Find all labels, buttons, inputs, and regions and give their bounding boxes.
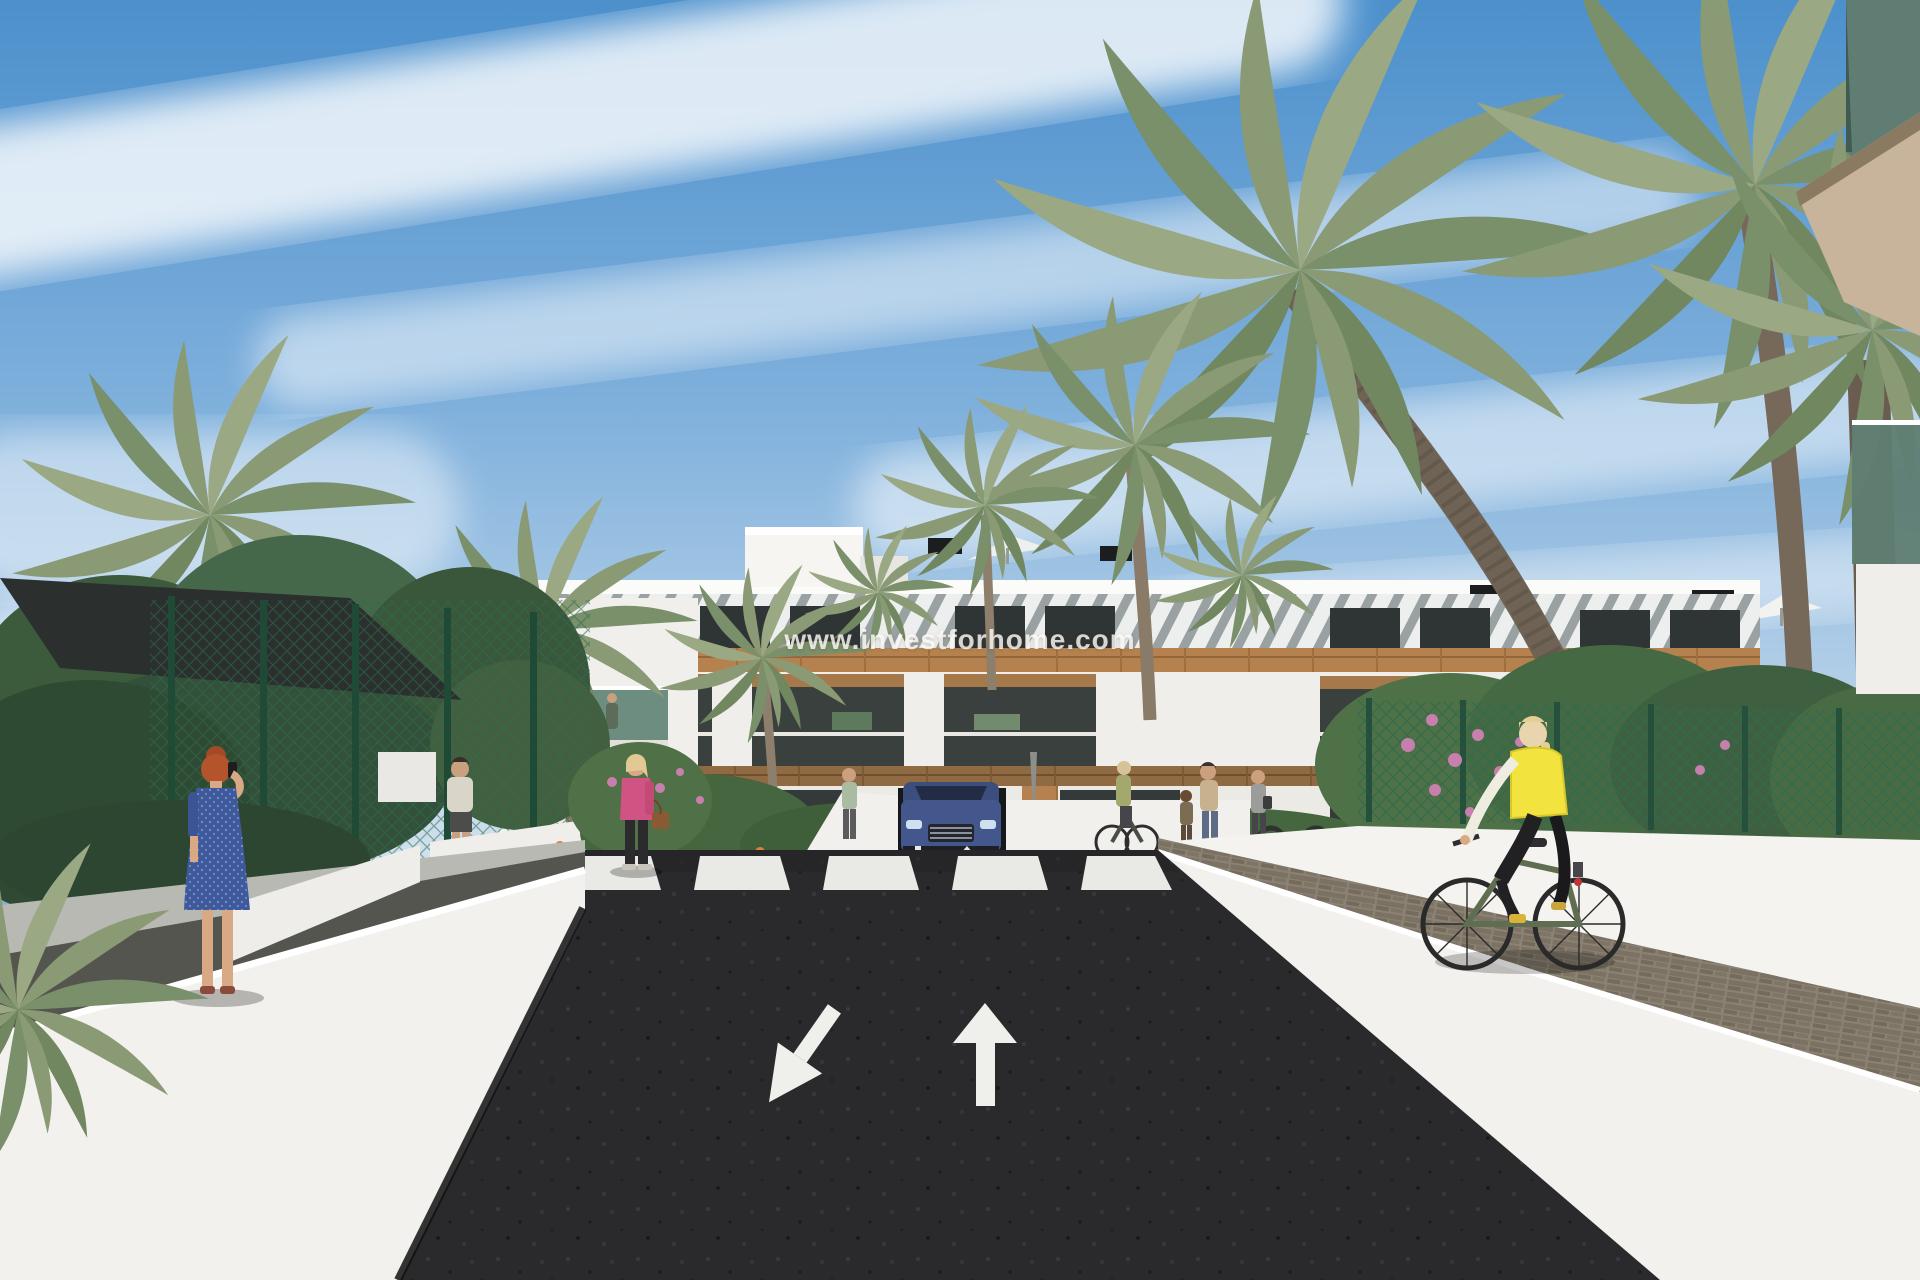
rendering-canvas: www.investforhome.com (0, 0, 1920, 1280)
distant-low-wall (378, 752, 436, 802)
balcony-person (606, 693, 618, 729)
right-fence-mesh (1358, 700, 1920, 832)
scene-art (0, 0, 1920, 1280)
car-suv (901, 782, 1001, 854)
